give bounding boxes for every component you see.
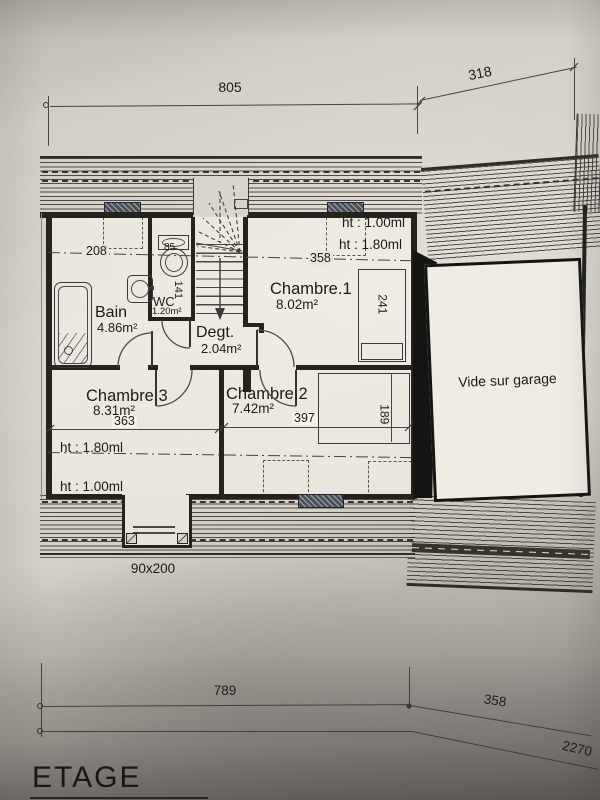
- stairs-direction-arrow: [215, 258, 225, 320]
- dimension-end-circles: [38, 103, 412, 734]
- height-100-bottom-label: ht : 1.00ml: [60, 480, 123, 494]
- stairs-winder-fan: [197, 183, 240, 252]
- door-arc-chambre1: [257, 330, 294, 367]
- dim-208-label: 208: [84, 245, 109, 258]
- dim-85-label: 85: [164, 243, 175, 254]
- dimension-ticks: [46, 63, 578, 433]
- floorplan-photo: { "meta": { "floor_title": "ETAGE" }, "r…: [0, 0, 600, 800]
- door-arc-wc: [162, 320, 190, 348]
- height-180-bottom-label: ht : 1.80ml: [60, 441, 123, 455]
- room-area-wc: 1.20m²: [152, 307, 182, 317]
- height-180-top-label: ht : 1.80ml: [339, 238, 402, 252]
- dim-358-top-label: 358: [308, 252, 333, 265]
- dim-189-label: 189: [378, 396, 391, 432]
- door-arc-bain: [118, 333, 152, 367]
- door-arc-chambre2: [260, 370, 296, 406]
- door-arc-chambre3: [156, 370, 192, 406]
- dim-241-label: 241: [376, 286, 389, 322]
- plan-annotations-overlay: [0, 0, 600, 800]
- height-100-top-label: ht : 1.00ml: [342, 216, 405, 230]
